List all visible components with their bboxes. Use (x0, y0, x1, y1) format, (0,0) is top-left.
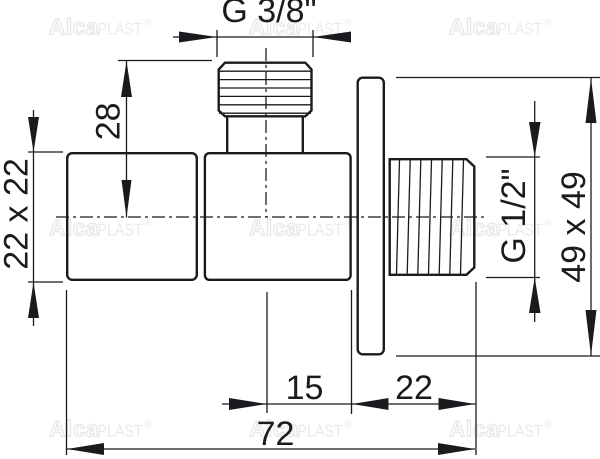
svg-text:Alca: Alca (449, 15, 499, 40)
svg-text:PLAST: PLAST (98, 20, 143, 39)
svg-text:®: ® (145, 219, 153, 230)
svg-text:22 x 22: 22 x 22 (0, 158, 35, 270)
svg-text:Alca: Alca (49, 417, 99, 442)
svg-text:28: 28 (90, 102, 128, 140)
svg-text:15: 15 (286, 369, 324, 407)
svg-text:®: ® (345, 420, 353, 431)
svg-text:®: ® (145, 18, 153, 29)
svg-text:®: ® (145, 420, 153, 431)
svg-text:®: ® (345, 18, 353, 29)
svg-text:G 3/8": G 3/8" (221, 0, 316, 30)
svg-text:PLAST: PLAST (98, 221, 143, 240)
svg-text:Alca: Alca (49, 216, 99, 241)
svg-text:Alca: Alca (449, 417, 499, 442)
svg-text:®: ® (545, 420, 553, 431)
svg-text:PLAST: PLAST (498, 20, 543, 39)
svg-text:®: ® (545, 219, 553, 230)
svg-text:PLAST: PLAST (298, 422, 343, 441)
svg-text:®: ® (545, 18, 553, 29)
svg-text:PLAST: PLAST (298, 221, 343, 240)
svg-text:PLAST: PLAST (98, 422, 143, 441)
svg-text:49 x 49: 49 x 49 (555, 171, 593, 283)
svg-text:22: 22 (395, 369, 433, 407)
svg-text:Alca: Alca (49, 15, 99, 40)
svg-text:72: 72 (257, 415, 295, 453)
svg-text:G 1/2": G 1/2" (495, 168, 533, 263)
svg-text:PLAST: PLAST (498, 422, 543, 441)
svg-text:Alca: Alca (249, 216, 299, 241)
